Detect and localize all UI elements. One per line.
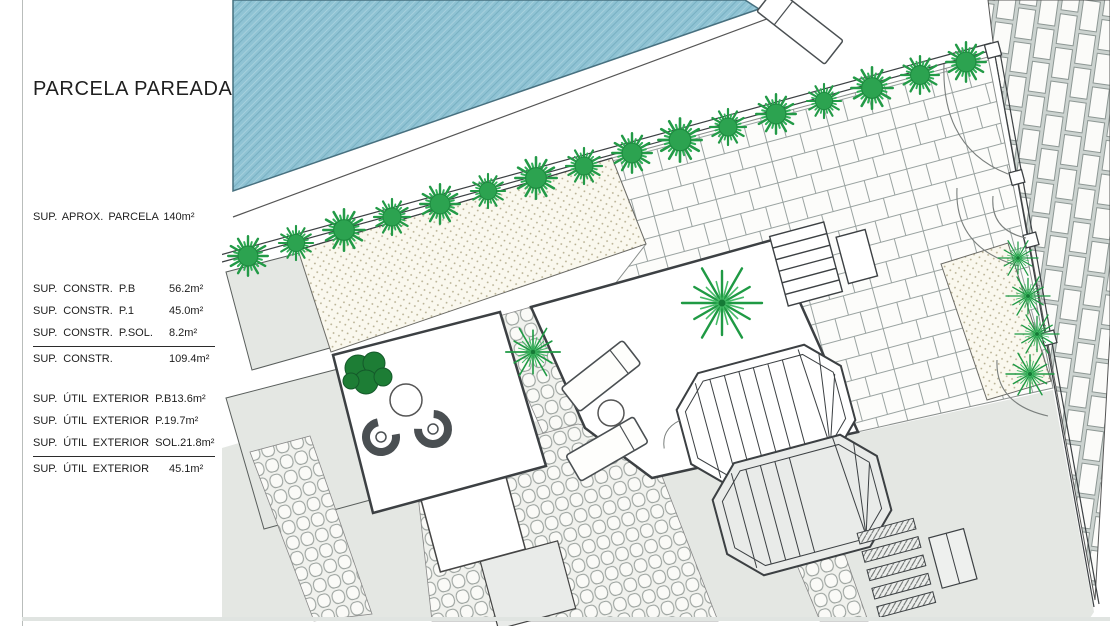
row-value: 21.8m² [180, 432, 215, 454]
table-row: SUP. CONSTR. P.SOL. 8.2m² [33, 322, 215, 344]
table-row: SUP. ÚTIL EXTERIOR SOL. 21.8m² [33, 432, 215, 454]
exterior-area-table: SUP. ÚTIL EXTERIOR P.B 13.6m² SUP. ÚTIL … [33, 388, 215, 480]
table-row: SUP. CONSTR. P.1 45.0m² [33, 300, 215, 322]
row-label: SUP. ÚTIL EXTERIOR SOL. [33, 432, 180, 454]
sheet-left-border [22, 0, 23, 626]
constructed-area-table: SUP. CONSTR. P.B 56.2m² SUP. CONSTR. P.1… [33, 278, 215, 370]
table-row: SUP. CONSTR. P.B 56.2m² [33, 278, 215, 300]
parcel-area-label: SUP. APROX. PARCELA 140m² [33, 211, 195, 223]
sum-divider [33, 456, 215, 457]
row-value: 9.7m² [170, 410, 215, 432]
table-total-row: SUP. CONSTR. 109.4m² [33, 348, 215, 370]
row-value: 45.0m² [169, 300, 215, 322]
table-row: SUP. ÚTIL EXTERIOR P.1 9.7m² [33, 410, 215, 432]
table-total-row: SUP. ÚTIL EXTERIOR 45.1m² [33, 458, 215, 480]
page-title: PARCELA PAREADA [33, 78, 232, 101]
row-label: SUP. ÚTIL EXTERIOR P.B [33, 388, 171, 410]
sum-divider [33, 346, 215, 347]
total-value: 45.1m² [169, 458, 215, 480]
total-label: SUP. CONSTR. [33, 348, 169, 370]
row-label: SUP. ÚTIL EXTERIOR P.1 [33, 410, 170, 432]
site-plan-sheet: PARCELA PAREADA SUP. APROX. PARCELA 140m… [0, 0, 1110, 626]
total-value: 109.4m² [169, 348, 215, 370]
row-label: SUP. CONSTR. P.1 [33, 300, 169, 322]
row-value: 8.2m² [169, 322, 215, 344]
info-panel: PARCELA PAREADA SUP. APROX. PARCELA 140m… [0, 0, 222, 626]
row-label: SUP. CONSTR. P.SOL. [33, 322, 169, 344]
garden-table [390, 384, 422, 416]
table-row: SUP. ÚTIL EXTERIOR P.B 13.6m² [33, 388, 215, 410]
row-value: 56.2m² [169, 278, 215, 300]
sheet-bottom-border [22, 617, 1110, 621]
row-label: SUP. CONSTR. P.B [33, 278, 169, 300]
row-value: 13.6m² [171, 388, 215, 410]
total-label: SUP. ÚTIL EXTERIOR [33, 458, 169, 480]
side-table [598, 400, 624, 426]
